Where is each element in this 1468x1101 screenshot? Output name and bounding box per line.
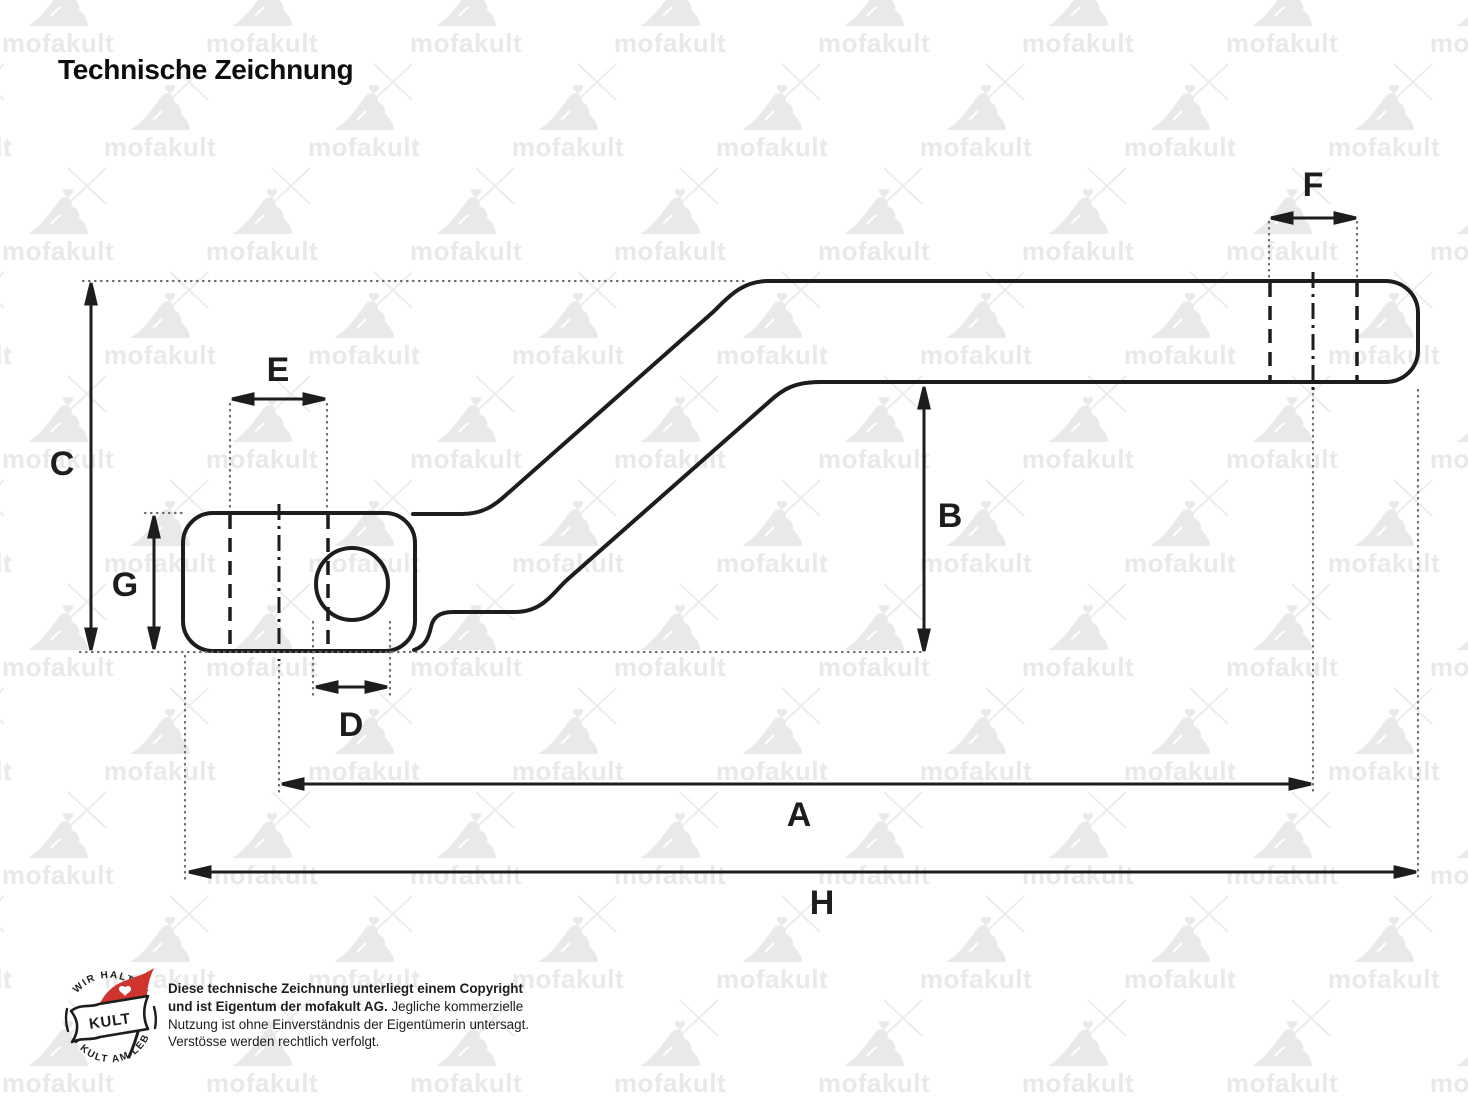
dimension-G <box>149 516 159 649</box>
technical-drawing: C G E B F D A H <box>0 0 1468 1101</box>
extension-lines <box>80 222 1418 880</box>
dimension-F <box>1271 213 1356 223</box>
dimension-B <box>919 387 929 651</box>
clamp-boss-outline <box>183 513 415 651</box>
copyright-line-2: und ist Eigentum der mofakult AG. Jeglic… <box>168 998 536 1016</box>
label-C: C <box>50 445 75 483</box>
dimension-C <box>86 283 96 650</box>
label-E: E <box>267 351 290 389</box>
label-A: A <box>787 796 812 834</box>
label-B: B <box>938 497 963 535</box>
page-title: Technische Zeichnung <box>58 54 353 86</box>
label-G: G <box>112 566 138 604</box>
copyright-text: Diese technische Zeichnung unterliegt ei… <box>168 980 536 1051</box>
label-H: H <box>810 884 835 922</box>
center-lines <box>279 272 1313 661</box>
copyright-line-4: Verstösse werden rechtlich verfolgt. <box>168 1033 536 1051</box>
badge-arc-left <box>66 1009 68 1031</box>
lever-arm-outline <box>413 281 1418 650</box>
dimension-E <box>232 394 325 404</box>
dimension-D <box>316 682 387 692</box>
dimension-A <box>282 779 1311 789</box>
dimension-H <box>189 867 1416 877</box>
copyright-line-1: Diese technische Zeichnung unterliegt ei… <box>168 980 536 998</box>
copyright-line-3: Nutzung ist ohne Einverständnis der Eige… <box>168 1016 536 1034</box>
part-outline <box>183 281 1418 651</box>
hidden-edges <box>230 283 1357 649</box>
kult-badge-logo: WIR HALTEN DEN KULT AM LEBEN KULT <box>50 958 170 1078</box>
dimension-arrows <box>86 213 1416 877</box>
badge-arc-right <box>154 1007 156 1028</box>
label-D: D <box>339 706 364 744</box>
technical-drawing-page: { "title": "Technische Zeichnung", "wate… <box>0 0 1468 1101</box>
label-F: F <box>1303 166 1324 204</box>
